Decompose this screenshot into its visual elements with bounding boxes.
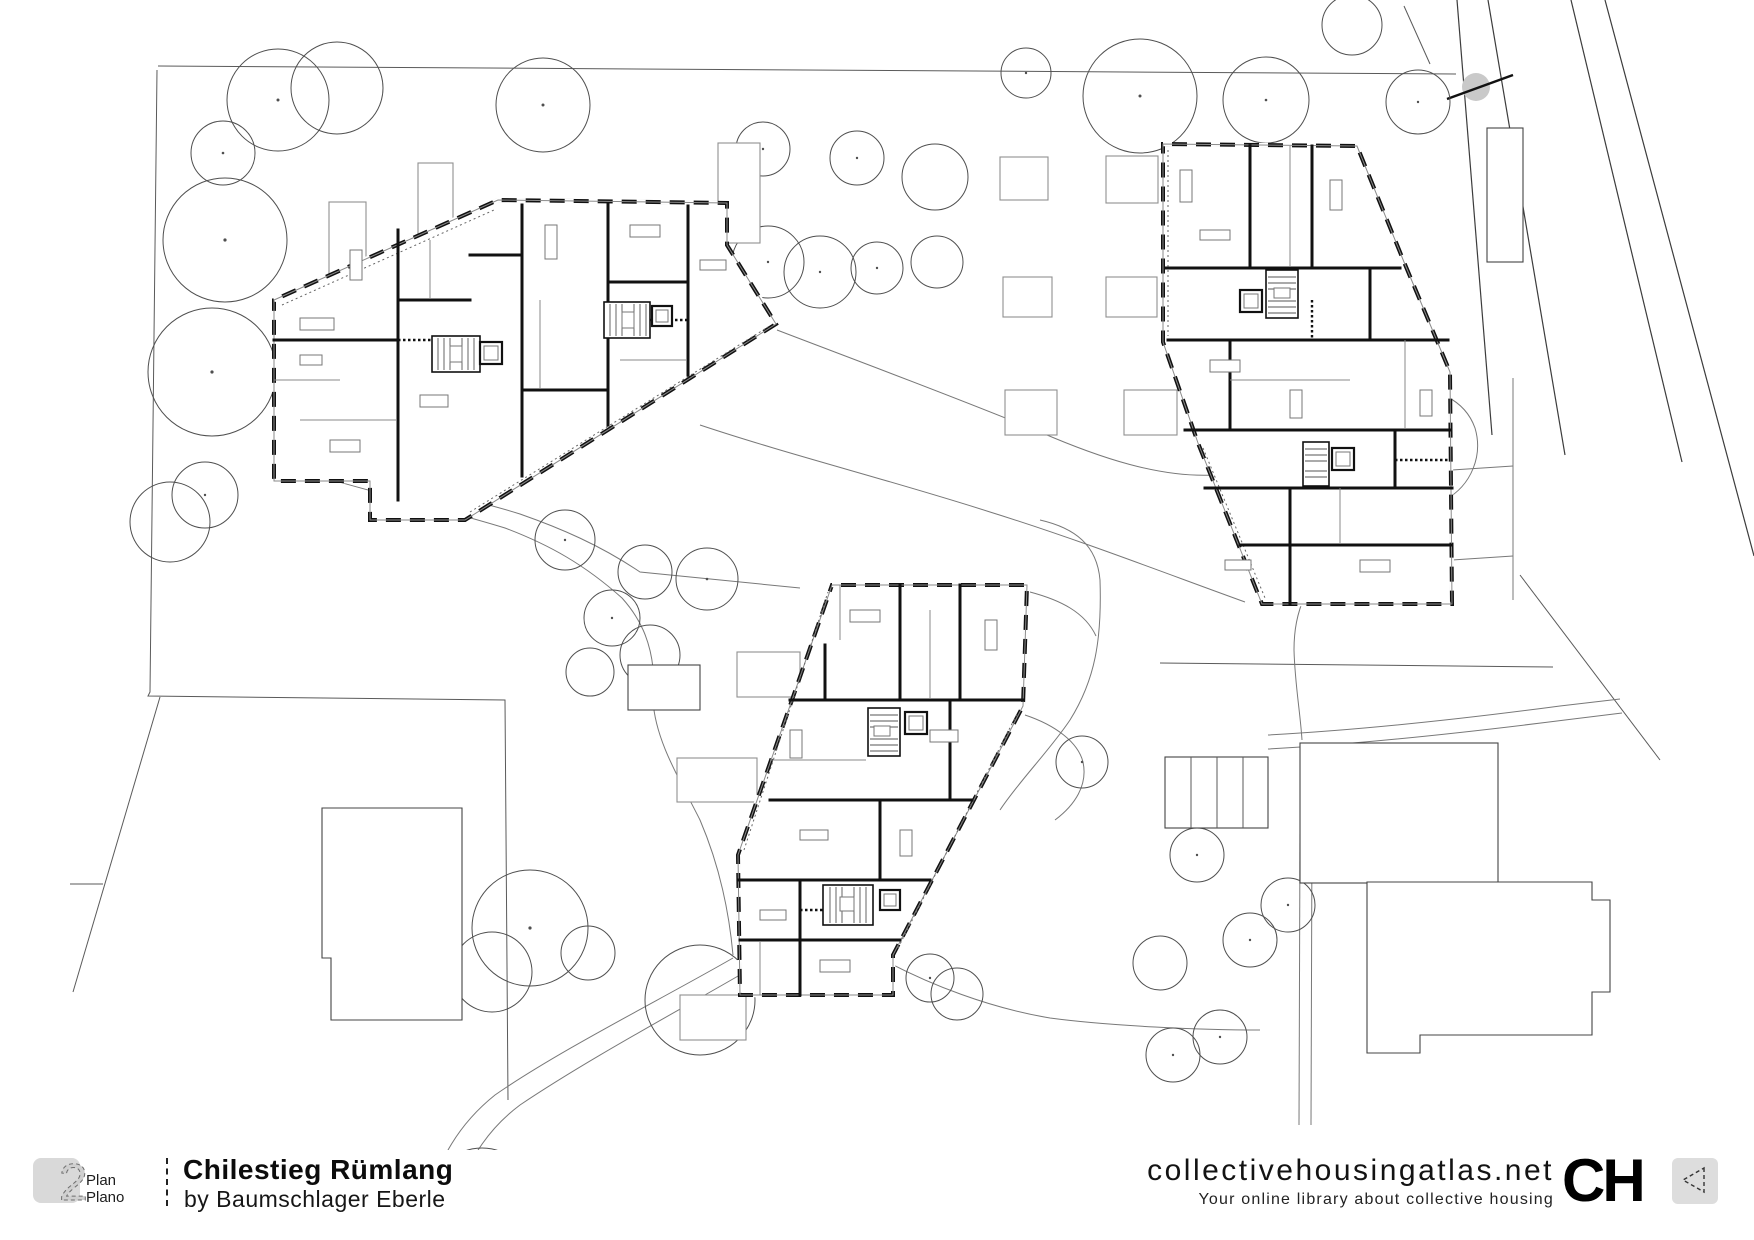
- ch-logo: CH: [1562, 1146, 1643, 1215]
- project-title: Chilestieg Rümlang: [183, 1154, 453, 1186]
- plan-label-en: Plan: [86, 1172, 124, 1189]
- building-b-outline: [1163, 144, 1452, 604]
- plan-label: Plan Plano: [86, 1172, 124, 1206]
- dashed-left-arrow-icon: [1672, 1158, 1718, 1204]
- title-block: 2 Plan Plano Chilestieg Rümlang by Baums…: [0, 1150, 1754, 1240]
- plan-label-es: Plano: [86, 1189, 124, 1206]
- building-c-outline: [738, 585, 1027, 995]
- plan-number: 2: [59, 1156, 88, 1212]
- plan-sheet: 2 Plan Plano Chilestieg Rümlang by Baums…: [0, 0, 1754, 1240]
- stair-core: [604, 302, 650, 338]
- building-a: [274, 143, 776, 520]
- building-b-balconies: [1000, 156, 1177, 435]
- stair-core: [1266, 270, 1298, 318]
- building-b: [1000, 144, 1452, 604]
- stair-core: [1303, 442, 1329, 486]
- site-name[interactable]: collectivehousingatlas.net: [1147, 1154, 1554, 1188]
- stair-core: [868, 708, 900, 756]
- building-c: [677, 585, 1027, 1040]
- site-plan-drawing: [0, 0, 1754, 1155]
- site-tagline: Your online library about collective hou…: [1147, 1191, 1554, 1209]
- stair-core: [823, 885, 873, 925]
- garage-row: [1165, 757, 1268, 828]
- access-roads: [1457, 0, 1754, 556]
- brand-block: collectivehousingatlas.net Your online l…: [1147, 1154, 1554, 1209]
- stair-core: [432, 336, 480, 372]
- project-byline: by Baumschlager Eberle: [184, 1186, 446, 1213]
- dashed-divider: [166, 1158, 168, 1206]
